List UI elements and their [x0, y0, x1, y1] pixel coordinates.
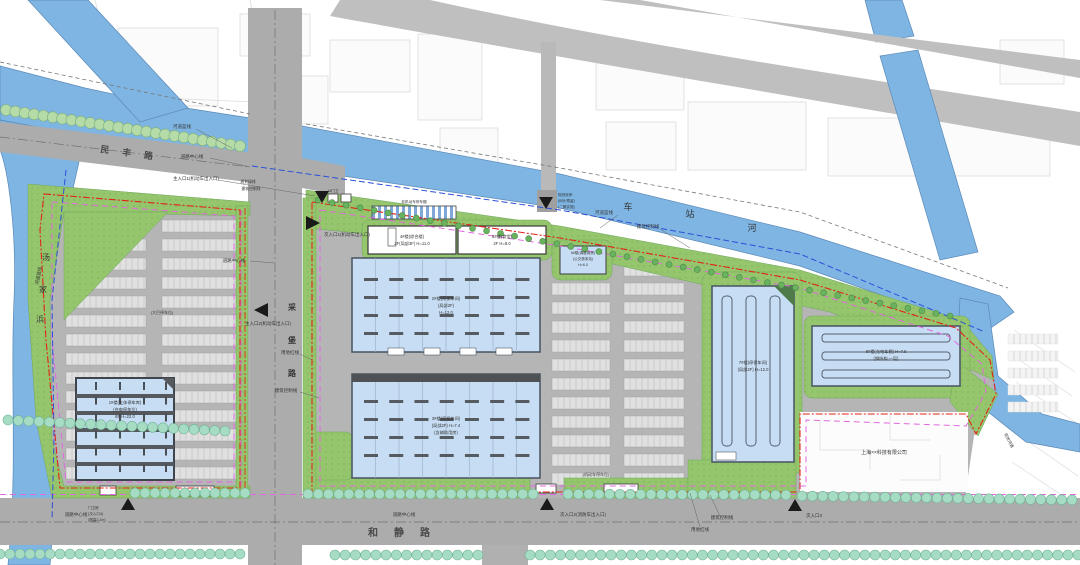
label-controlline-3: 建筑控制线	[711, 514, 734, 521]
svg-text:路: 路	[288, 368, 297, 378]
label-blueline-1: 河道蓝线	[173, 123, 191, 130]
master-plan-svg: 民 丰 路 和 静 路 采 堡 路 汤 家 浜 车 站 河 河道蓝线 河道蓝线 …	[0, 0, 1080, 565]
svg-text:汤: 汤	[42, 253, 50, 262]
road-name-hejing: 和 静 路	[367, 526, 433, 539]
label-centerline-4: 道路中心线	[65, 511, 88, 518]
label-bus-parking: (大巴停车位)	[151, 309, 174, 315]
label-b8-2: (钢结构,一层)	[874, 355, 899, 362]
label-entrance-main2: 主入口2(机动车出入口)	[245, 320, 292, 327]
label-b4-1: 4#楼(综合楼)	[400, 233, 425, 240]
label-entrance-sub3: 次入口3	[806, 512, 822, 519]
label-b2-3: H=12.0	[439, 310, 453, 315]
label-entrance-sub2: 次入口2(消防车出入口)	[560, 511, 607, 518]
label-b5-1: 5#楼(食堂)	[492, 233, 513, 240]
label-b2-1: 2#楼(停保车间)	[432, 295, 461, 302]
svg-text:堡: 堡	[288, 335, 296, 345]
label-company: 上海××科技有限公司	[861, 449, 907, 456]
label-b6-3: H=6.0	[578, 263, 588, 267]
label-controlline-2: 建筑控制线	[637, 223, 660, 230]
label-centerline-1: 道路中心线	[181, 153, 204, 160]
label-b1-2: (充电停车位)	[113, 406, 137, 413]
label-centerline-3: 道路中心线	[393, 511, 416, 518]
label-b5-2: 2F H=8.0	[493, 241, 511, 246]
building-7-workshop	[712, 286, 794, 462]
green-strip-road-east	[303, 198, 316, 498]
label-gate-1: 门卫房	[88, 505, 99, 510]
label-dock-2: (码头预留)	[558, 198, 575, 203]
svg-text:河: 河	[747, 222, 756, 233]
label-controlline-1: 建筑控制线	[275, 387, 298, 394]
label-dock-1: 规划驳岸	[558, 192, 573, 197]
label-entrance-main1: 主入口1(机动车出入口)	[173, 175, 220, 182]
road-north-stub	[541, 42, 556, 192]
label-b1-3: 6F H=22.0	[115, 414, 135, 419]
label-b7-1: 7#楼(停保车间)	[739, 359, 768, 366]
label-blueline-2: 河道蓝线	[595, 209, 613, 216]
label-b1-1: 1#楼(立体停车库)	[109, 399, 142, 406]
label-bike-shed: 非机动车停车棚	[401, 199, 427, 204]
label-b3-2: (局部2F) H=7.4	[432, 422, 461, 429]
label-redline-1: 用地红线	[281, 349, 299, 356]
green-strip-road-west	[236, 206, 248, 490]
label-dock-3: (二期实施)	[558, 204, 575, 209]
label-b7-2: (局部2F) H=12.0	[738, 366, 770, 373]
label-entrance-sub1: 次入口1(机动车出入口)	[324, 231, 371, 238]
svg-text:车: 车	[623, 201, 632, 212]
road-hejing	[0, 498, 1080, 545]
label-gate-2: (次入口4)	[88, 511, 103, 516]
site-plan-canvas: 民 丰 路 和 静 路 采 堡 路 汤 家 浜 车 站 河 河道蓝线 河道蓝线 …	[0, 0, 1080, 565]
label-car-parking: (机动车停车位)	[583, 471, 610, 477]
label-gatehouse-1: 1#门卫	[327, 188, 339, 193]
label-gate-3: (限高2.2m)	[88, 517, 106, 522]
label-b6-2: (公交首末站)	[573, 256, 593, 261]
svg-text:站: 站	[685, 208, 694, 219]
label-b3-1: 3#楼(停保车间)	[432, 415, 461, 422]
label-b2-2: (局部2F)	[438, 302, 455, 309]
svg-text:采: 采	[287, 302, 297, 312]
label-b3-3: (含辅助用房)	[434, 429, 458, 436]
road-south-stub	[482, 545, 528, 565]
svg-text:浜: 浜	[36, 314, 44, 324]
building-4-office	[368, 226, 456, 254]
label-greenline: 规划绿线	[240, 179, 255, 184]
label-redline-2: 用地红线	[691, 526, 709, 533]
label-exist-river: 现状河道	[1003, 432, 1016, 449]
label-greenline-sub: 建筑控制线	[242, 186, 261, 191]
svg-text:家: 家	[39, 284, 47, 294]
label-b6-1: 6#楼(调度用房)	[571, 250, 595, 255]
label-centerline-2: 道路中心线	[223, 257, 246, 264]
label-b4-2: 2F(局部3F) H=11.0	[394, 240, 430, 247]
label-b8-1: 8#楼(充电车棚) H=7.5	[866, 348, 908, 355]
